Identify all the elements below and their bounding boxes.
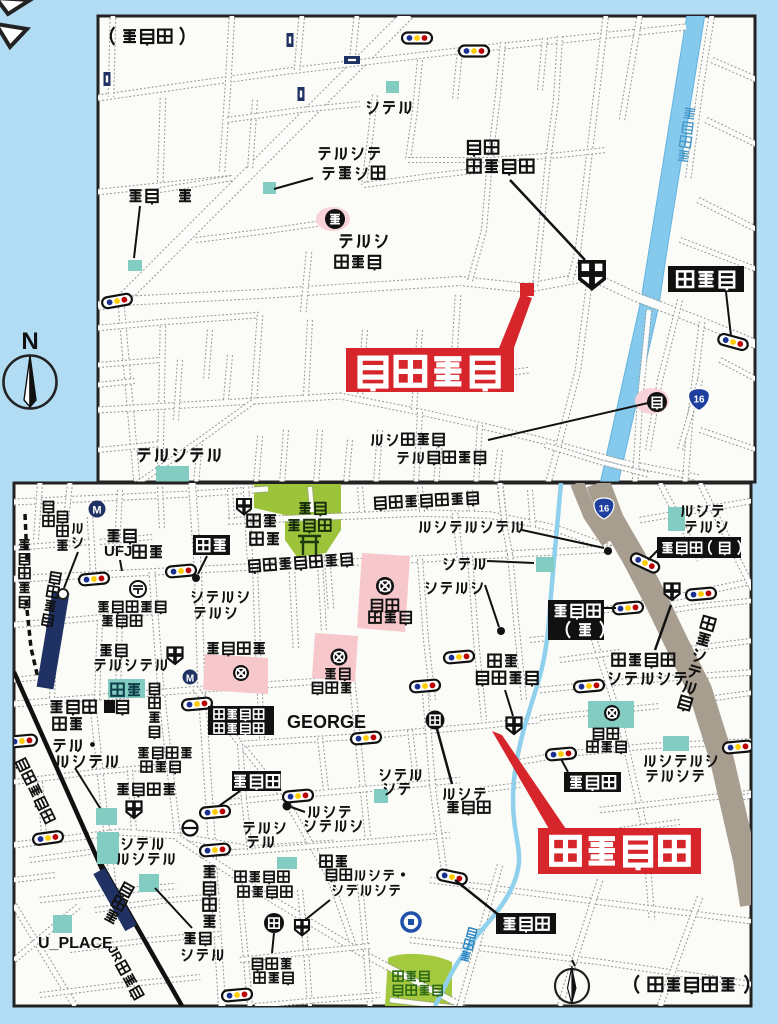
svg-text:U_PLACE: U_PLACE — [38, 935, 113, 952]
svg-text:16: 16 — [693, 395, 705, 406]
svg-text:UFJ: UFJ — [104, 543, 132, 560]
svg-text:N: N — [21, 328, 38, 355]
svg-text:16: 16 — [599, 504, 610, 515]
svg-text:M: M — [92, 505, 101, 517]
svg-text:M: M — [186, 674, 194, 685]
svg-text:GEORGE: GEORGE — [287, 712, 366, 732]
